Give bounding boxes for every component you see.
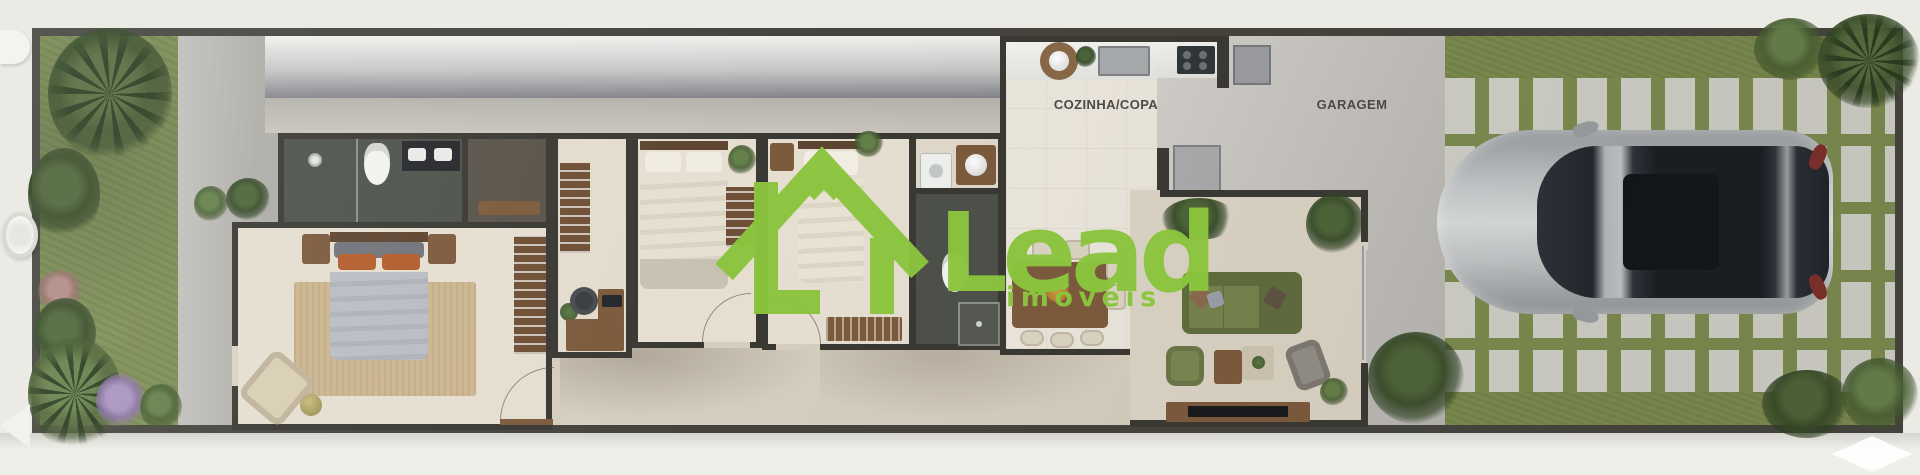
car — [1437, 124, 1833, 320]
sink-basin — [408, 148, 426, 161]
burner — [1199, 62, 1207, 70]
terrace-plant — [194, 186, 228, 222]
headboard — [640, 141, 728, 150]
flowering-bush — [96, 374, 146, 428]
palm-tree — [48, 28, 172, 160]
car-sunroof — [1623, 174, 1719, 270]
office-room — [552, 133, 632, 358]
door-swing-arc — [500, 367, 554, 421]
pillow-accent — [338, 254, 376, 270]
terrace-plant — [226, 178, 270, 220]
living-plant — [1306, 194, 1364, 254]
double-bed — [640, 141, 728, 289]
palm-tree — [1818, 14, 1920, 108]
shower-glass — [356, 139, 358, 222]
door-opening — [232, 346, 238, 386]
kitchen-wall-stub-top — [1217, 36, 1229, 88]
nightstand — [302, 234, 330, 264]
door-leaf — [500, 419, 553, 425]
curb-marker-tab — [0, 30, 30, 64]
sliding-glass-door — [1362, 246, 1364, 360]
counter-plant — [1076, 46, 1096, 68]
headboard — [330, 232, 428, 242]
counter-extension — [1157, 36, 1223, 78]
blanket-fold — [640, 259, 728, 289]
roof-band-shadow — [265, 98, 1000, 133]
shrub — [1762, 370, 1852, 438]
round-basin — [1049, 51, 1069, 71]
logo: Lead imóveis — [716, 138, 1276, 368]
double-bed — [330, 232, 428, 360]
tv-console — [1166, 402, 1310, 422]
cooktop-icon — [1177, 46, 1215, 74]
burner — [1199, 51, 1207, 59]
fern-plant — [1754, 18, 1828, 80]
curb-marker-ring — [2, 212, 38, 258]
fiddle-leaf-shrub — [1368, 332, 1464, 424]
living-plant — [1320, 378, 1348, 406]
kitchen-label: COZINHA/COPA — [1030, 97, 1182, 112]
tv-screen — [1188, 406, 1288, 417]
pillow-accent — [382, 254, 420, 270]
shrub — [28, 148, 100, 240]
garage-label: GARAGEM — [1276, 97, 1428, 112]
roof-band — [265, 36, 1000, 98]
logo-house-icon — [716, 138, 932, 364]
living-wall-right-lower — [1361, 363, 1368, 427]
closet-rack — [514, 236, 546, 354]
desk — [566, 319, 624, 351]
sink-basin — [434, 148, 452, 161]
toilet-icon — [364, 143, 390, 185]
nightstand — [428, 234, 456, 264]
burner — [1183, 62, 1191, 70]
floor-plant-pot — [300, 394, 322, 416]
pillow — [645, 152, 681, 172]
burner — [1183, 51, 1191, 59]
floor-plan-canvas: COZINHA/COPA GARAGEM Lead imóveis — [0, 0, 1920, 475]
wardrobe-rack — [560, 163, 590, 253]
logo-tagline-text: imóveis — [1006, 284, 1162, 311]
double-vanity — [402, 141, 460, 171]
sidewalk-bottom — [0, 433, 1920, 475]
duvet — [330, 272, 428, 360]
closet-bench — [478, 201, 540, 215]
lot-wall-top — [32, 28, 1903, 36]
suite-bathroom — [278, 133, 552, 228]
sliding-glass-door — [1366, 250, 1368, 362]
round-board — [1040, 42, 1078, 80]
spiky-plant — [140, 384, 182, 430]
shower-head-icon — [308, 153, 322, 167]
kitchen-sink — [1098, 46, 1150, 76]
monitor-icon — [602, 295, 622, 307]
duvet — [640, 175, 728, 259]
office-chair — [570, 287, 598, 315]
shrub — [1842, 358, 1918, 432]
master-bedroom — [232, 222, 552, 430]
utility-box — [1233, 45, 1271, 85]
